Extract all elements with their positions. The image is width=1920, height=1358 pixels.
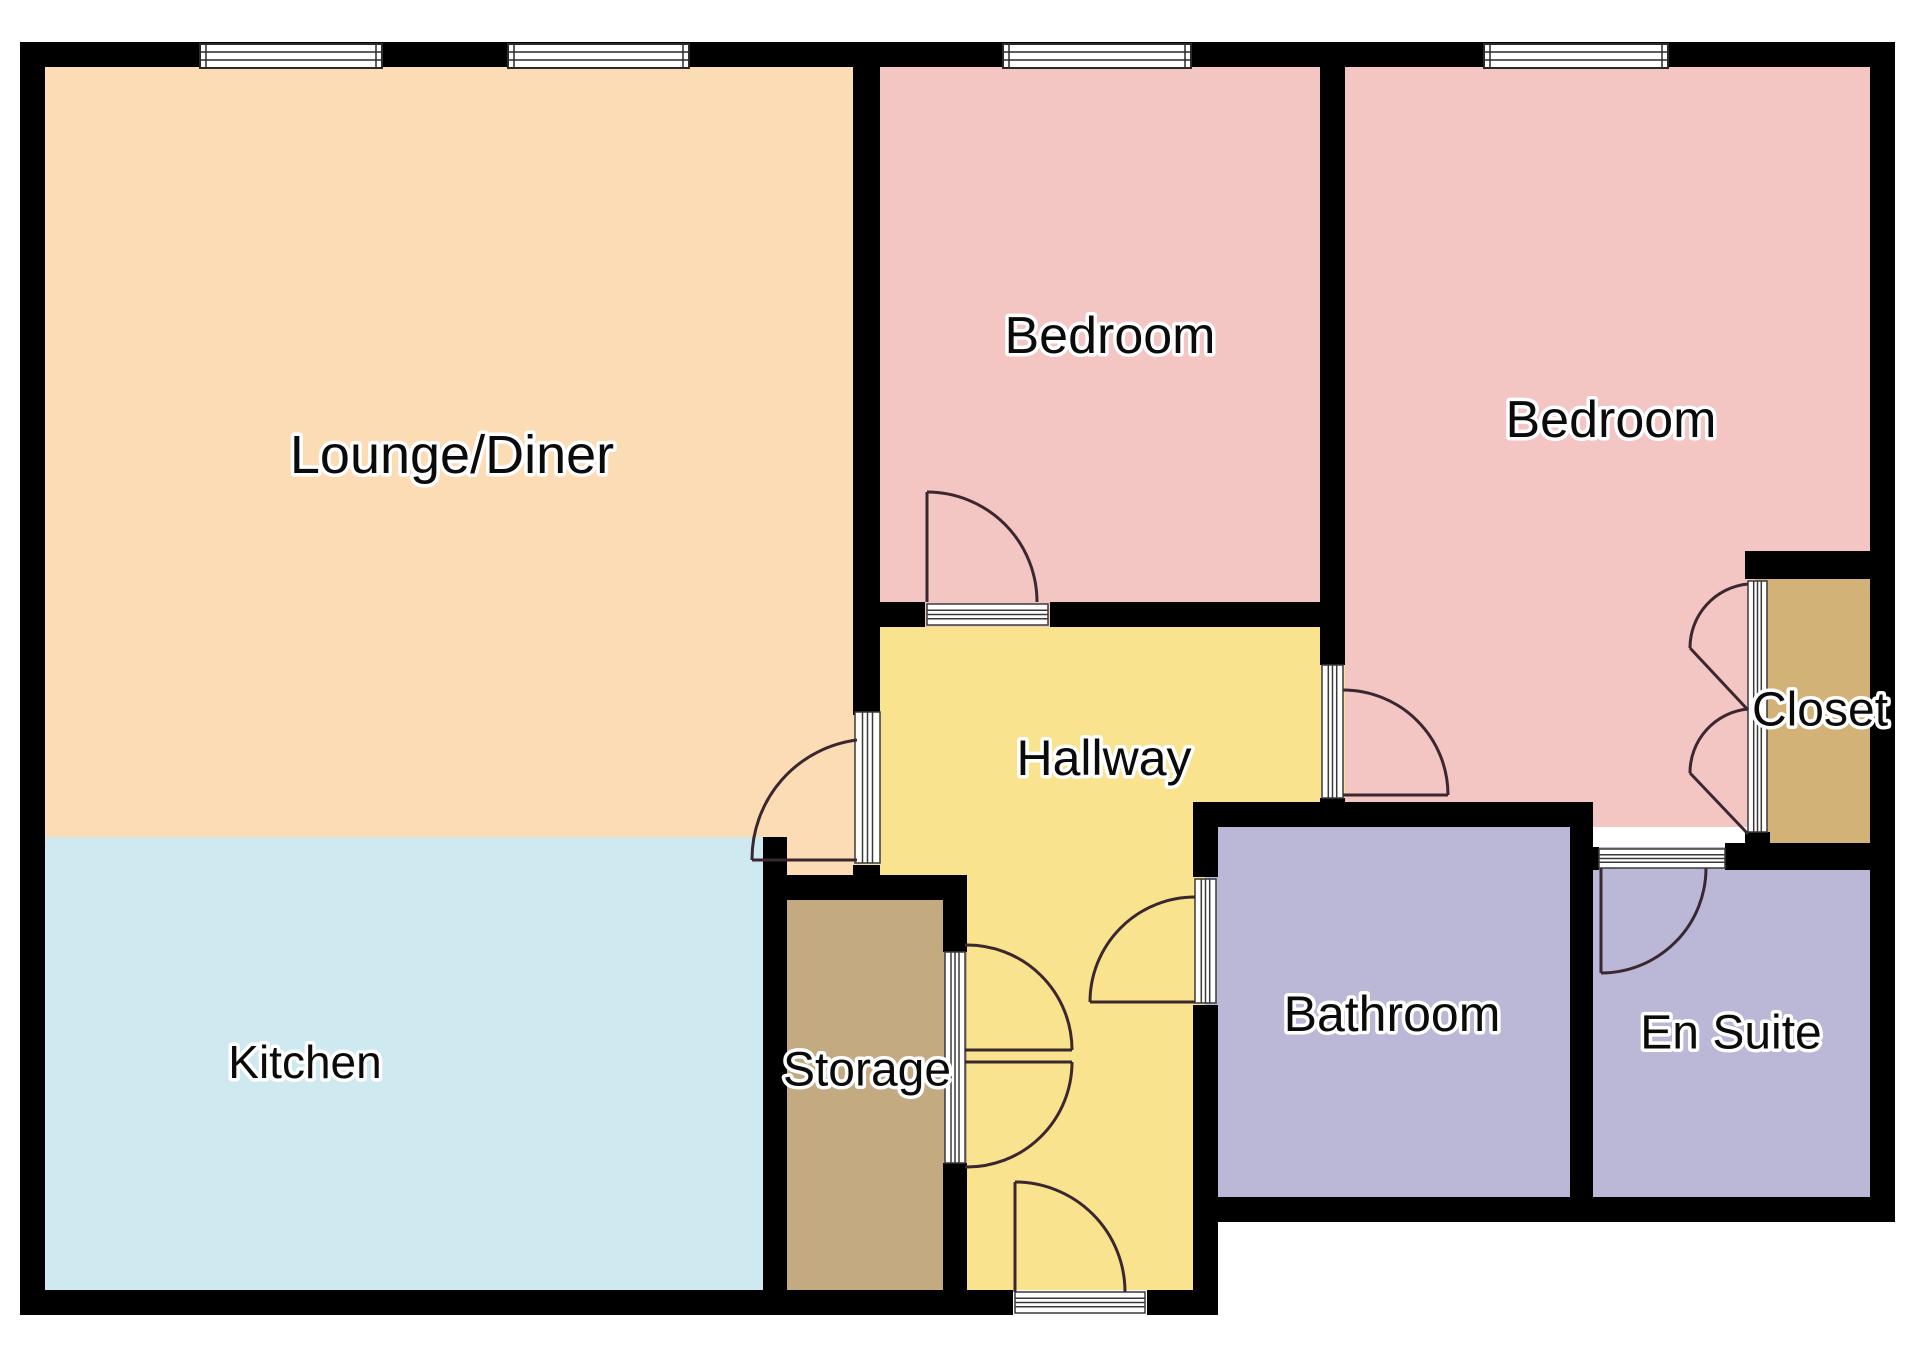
room-hallway (955, 827, 1218, 1290)
wall-hall-bath-upper (1193, 802, 1218, 877)
room-label-storage: Storage (783, 1044, 951, 1097)
wall-storage-east-b (943, 1163, 967, 1290)
room-label-bedroom2: Bedroom (1506, 391, 1717, 449)
wall-outer-right (1870, 42, 1895, 1222)
wall-outer-left (20, 42, 45, 1315)
room-label-ensuite: En Suite (1640, 1007, 1821, 1060)
room-label-bedroom1: Bedroom (1005, 307, 1216, 365)
wall-hall-bath-lower (1193, 1005, 1218, 1315)
wall-outer-bottom-right (1193, 1197, 1895, 1222)
wall-storage-top (787, 875, 967, 900)
wall-bath-top (1193, 802, 1593, 827)
wall-storage-east-a (943, 900, 967, 952)
window-lounge-2-icon (508, 44, 689, 68)
floor-plan: Lounge/DinerBedroomBedroomHallwayClosetK… (0, 0, 1920, 1358)
wall-bedroom-divider-upper (1320, 67, 1345, 665)
room-label-lounge: Lounge/Diner (290, 425, 614, 485)
room-kitchen (45, 837, 787, 1290)
wall-outer-bottom-left-a (20, 1290, 1013, 1315)
wall-ensuite-top-nub (1570, 847, 1599, 870)
room-label-kitchen: Kitchen (228, 1036, 381, 1088)
room-label-hallway: Hallway (1016, 730, 1191, 786)
wall-closet-track-foot (1745, 832, 1770, 870)
floor-plan-page: Lounge/DinerBedroomBedroomHallwayClosetK… (0, 0, 1920, 1358)
wall-bath-ensuite-divider (1570, 827, 1593, 1222)
window-bedroom-1-icon (1003, 44, 1191, 68)
window-bedroom-2-icon (1484, 44, 1668, 68)
room-label-closet: Closet (1752, 684, 1888, 737)
room-hallway (868, 627, 967, 900)
room-label-bathroom: Bathroom (1284, 986, 1501, 1042)
window-lounge-1-icon (200, 44, 382, 68)
wall-bedroom1-bottom-b (1050, 602, 1345, 627)
wall-bedroom1-bottom-a (853, 602, 925, 627)
wall-closet-top (1745, 551, 1882, 579)
